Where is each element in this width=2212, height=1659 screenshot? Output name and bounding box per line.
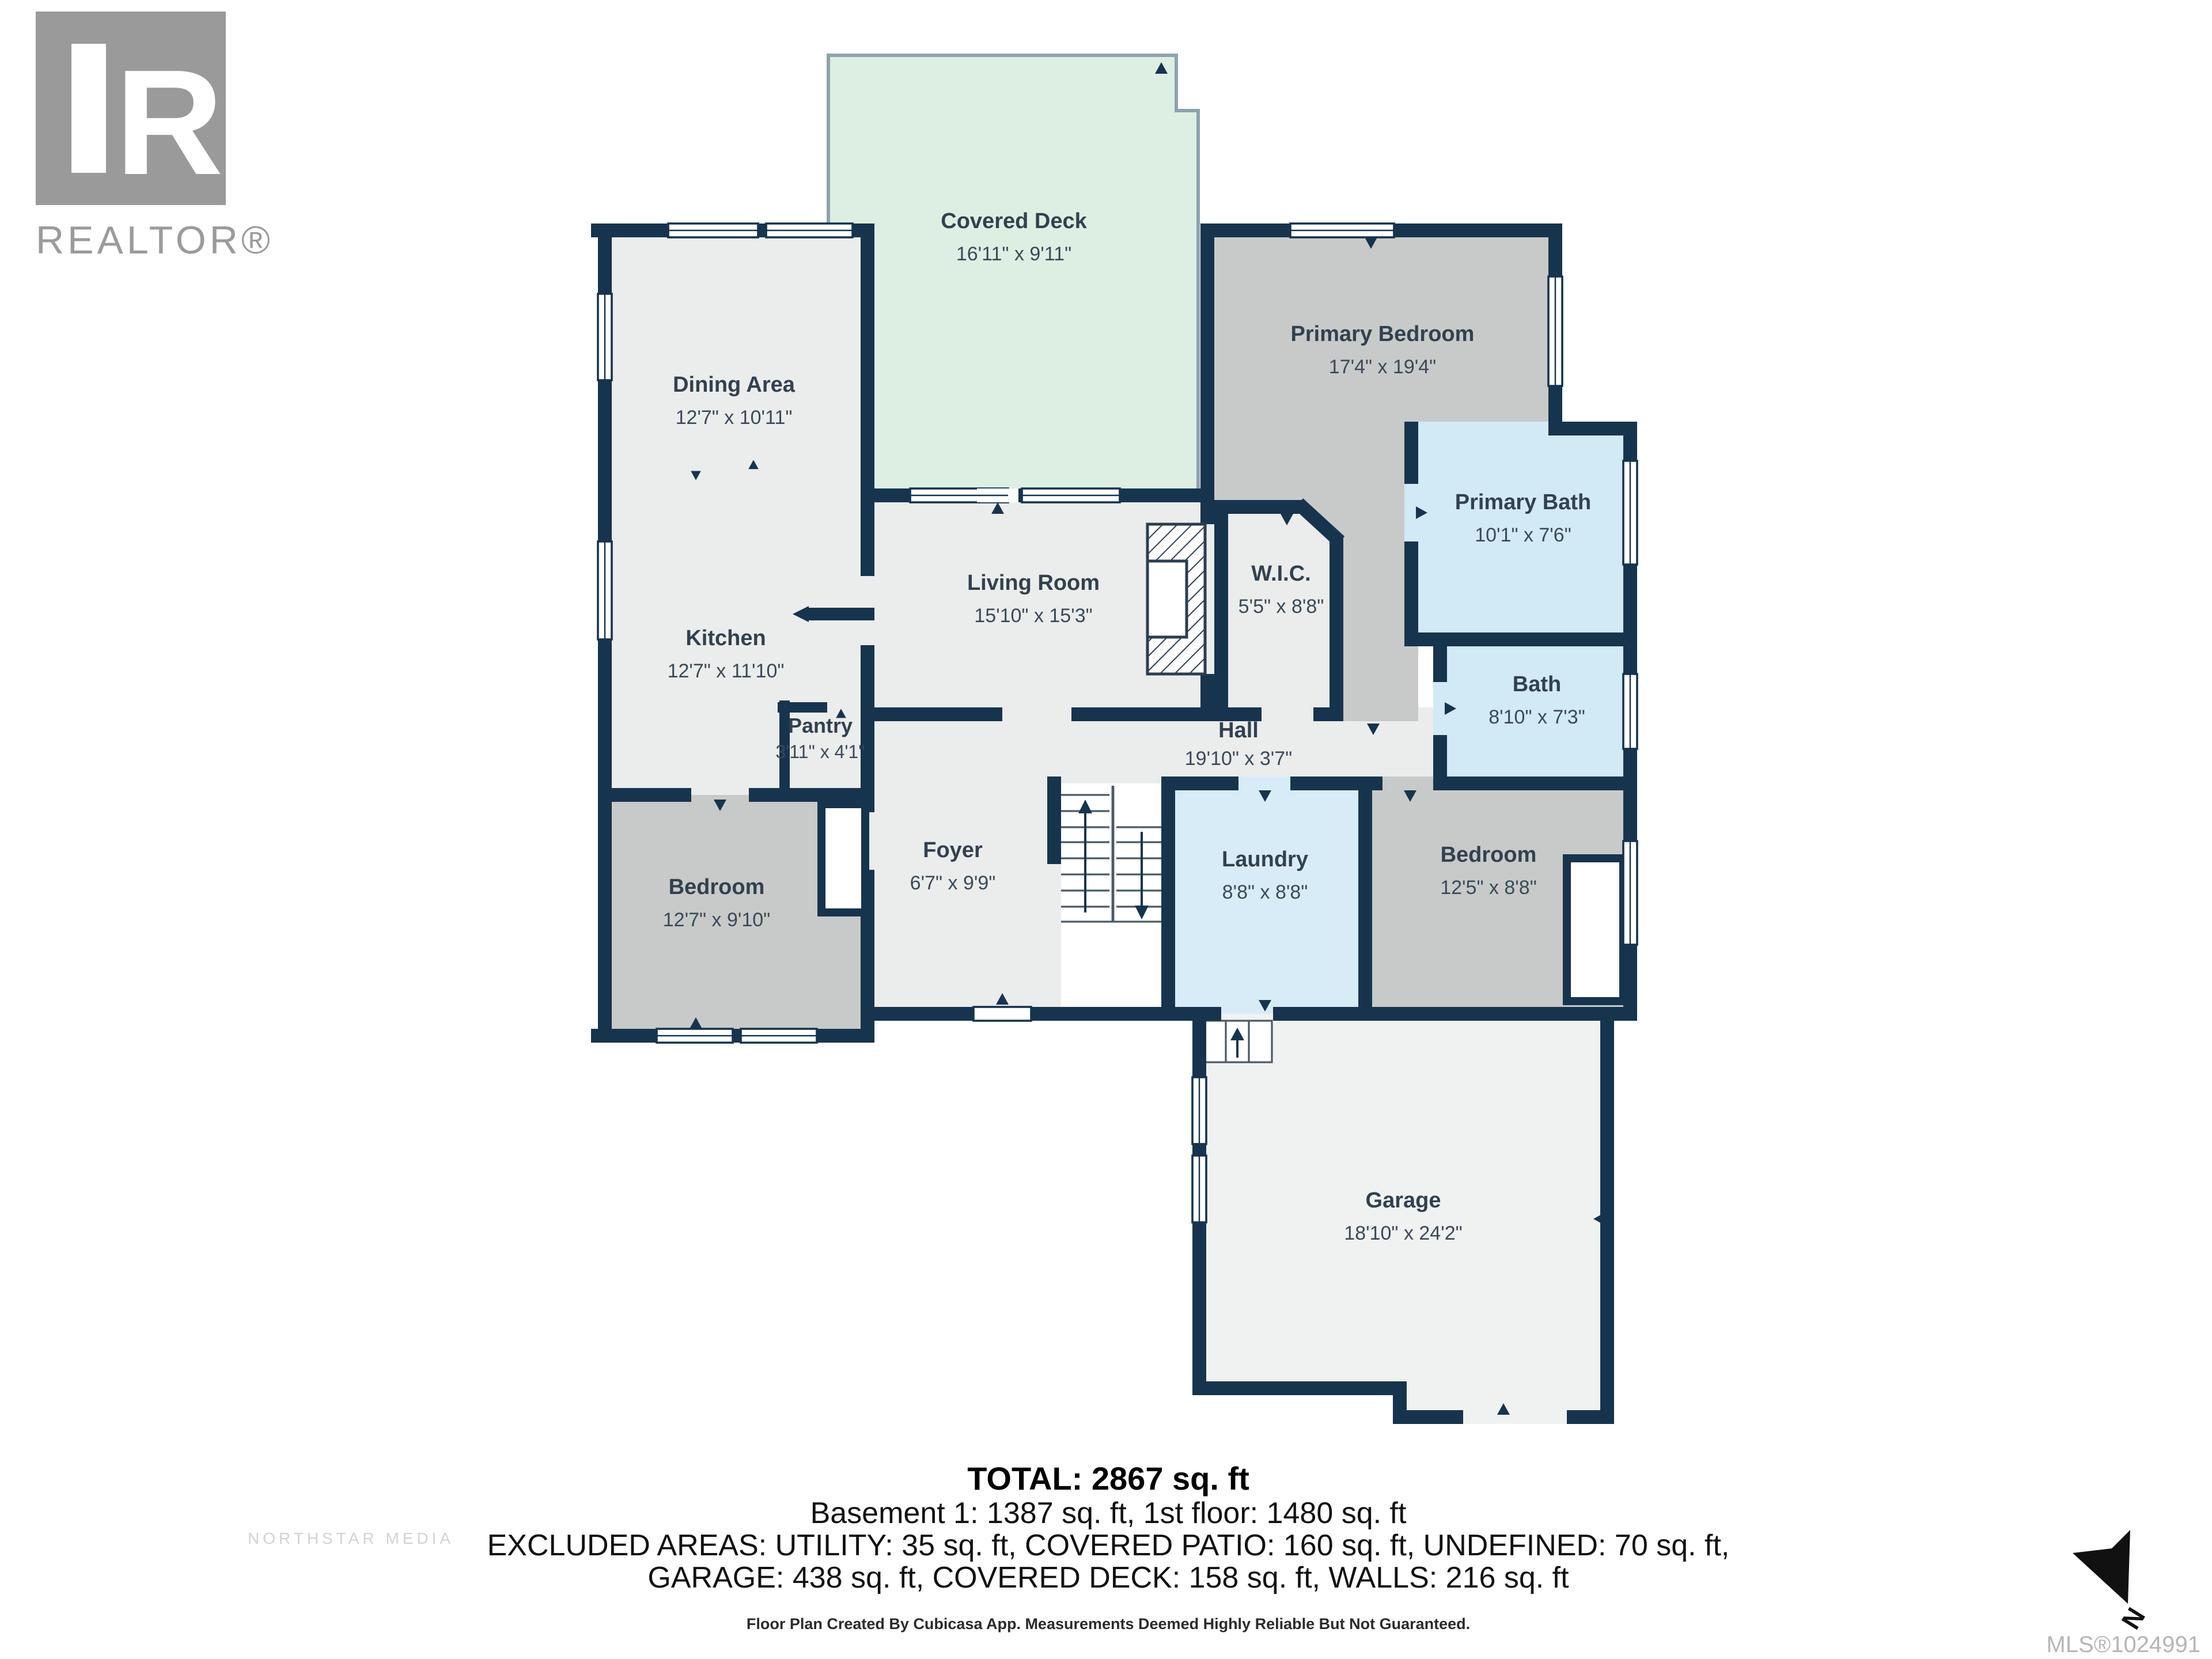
living-room-label: Living Room [967,571,1100,595]
garage-label: Garage [1366,1188,1441,1213]
mls-number: MLS®1024991 [2047,1632,2200,1657]
bedroom-right-dims: 12'5" x 8'8" [1440,877,1537,899]
pantry-label: Pantry [788,714,853,737]
laundry-label: Laundry [1222,847,1308,872]
summary-total: TOTAL: 2867 sq. ft [967,1460,1249,1497]
summary-disclaimer: Floor Plan Created By Cubicasa App. Meas… [747,1615,1470,1633]
wic-dims: 5'5" x 8'8" [1238,596,1324,618]
floor-plan-page: Covered Deck 16'11" x 9'11" Dining Area … [0,0,2212,1659]
living-room-dims: 15'10" x 15'3" [974,605,1092,627]
summary-excluded-2: GARAGE: 438 sq. ft, COVERED DECK: 158 sq… [647,1561,1569,1594]
bedroom-left-closet [821,804,865,912]
room-fills [598,55,1637,1424]
primary-bedroom-label: Primary Bedroom [1291,322,1475,346]
primary-bath-dims: 10'1" x 7'6" [1475,524,1571,546]
staircase [1061,783,1168,1014]
bedroom-right-closet [1567,858,1623,1001]
bedroom-left-dims: 12'7" x 9'10" [663,909,770,931]
foyer-dims: 6'7" x 9'9" [910,872,996,894]
dining-area-label: Dining Area [673,373,796,397]
primary-bedroom-dims: 17'4" x 19'4" [1329,356,1436,378]
hall-label: Hall [1218,718,1259,743]
covered-deck-label: Covered Deck [941,209,1087,233]
bedroom-right-label: Bedroom [1441,843,1537,867]
bedroom-left-label: Bedroom [669,875,765,899]
garage-floor [1192,1014,1614,1424]
hall-dims: 19'10" x 3'7" [1185,748,1292,770]
realtor-logo-text: REALTOR® [36,218,274,262]
realtor-logo-letter: R [115,39,224,206]
wic-label: W.I.C. [1251,562,1310,586]
foyer-label: Foyer [923,838,983,862]
area-summary: TOTAL: 2867 sq. ft Basement 1: 1387 sq. … [487,1460,1730,1633]
primary-bath-label: Primary Bath [1455,490,1592,514]
realtor-logo-bar [71,44,106,173]
fireplace [1147,524,1205,674]
laundry-dims: 8'8" x 8'8" [1222,881,1308,903]
bath-dims: 8'10" x 7'3" [1488,706,1585,728]
north-label: N [2115,1603,2151,1635]
covered-deck-dims: 16'11" x 9'11" [956,243,1071,265]
garage-steps [1203,1021,1272,1062]
garage-dims: 18'10" x 24'2" [1344,1222,1462,1244]
kitchen-label: Kitchen [685,626,766,650]
pantry-dims: 3'11" x 4'1" [775,741,865,762]
summary-excluded-1: EXCLUDED AREAS: UTILITY: 35 sq. ft, COVE… [487,1529,1730,1562]
northstar-watermark: NORTHSTAR MEDIA [248,1529,454,1547]
realtor-logo: R REALTOR® [36,12,274,262]
floor-plan-canvas: Covered Deck 16'11" x 9'11" Dining Area … [0,0,2212,1659]
dining-area-dims: 12'7" x 10'11" [676,407,793,429]
bath-label: Bath [1513,672,1561,696]
kitchen-dims: 12'7" x 11'10" [668,660,785,682]
north-arrow-icon: N [2073,1530,2151,1634]
summary-floors: Basement 1: 1387 sq. ft, 1st floor: 1480… [810,1497,1407,1530]
covered-deck-floor [828,55,1198,495]
